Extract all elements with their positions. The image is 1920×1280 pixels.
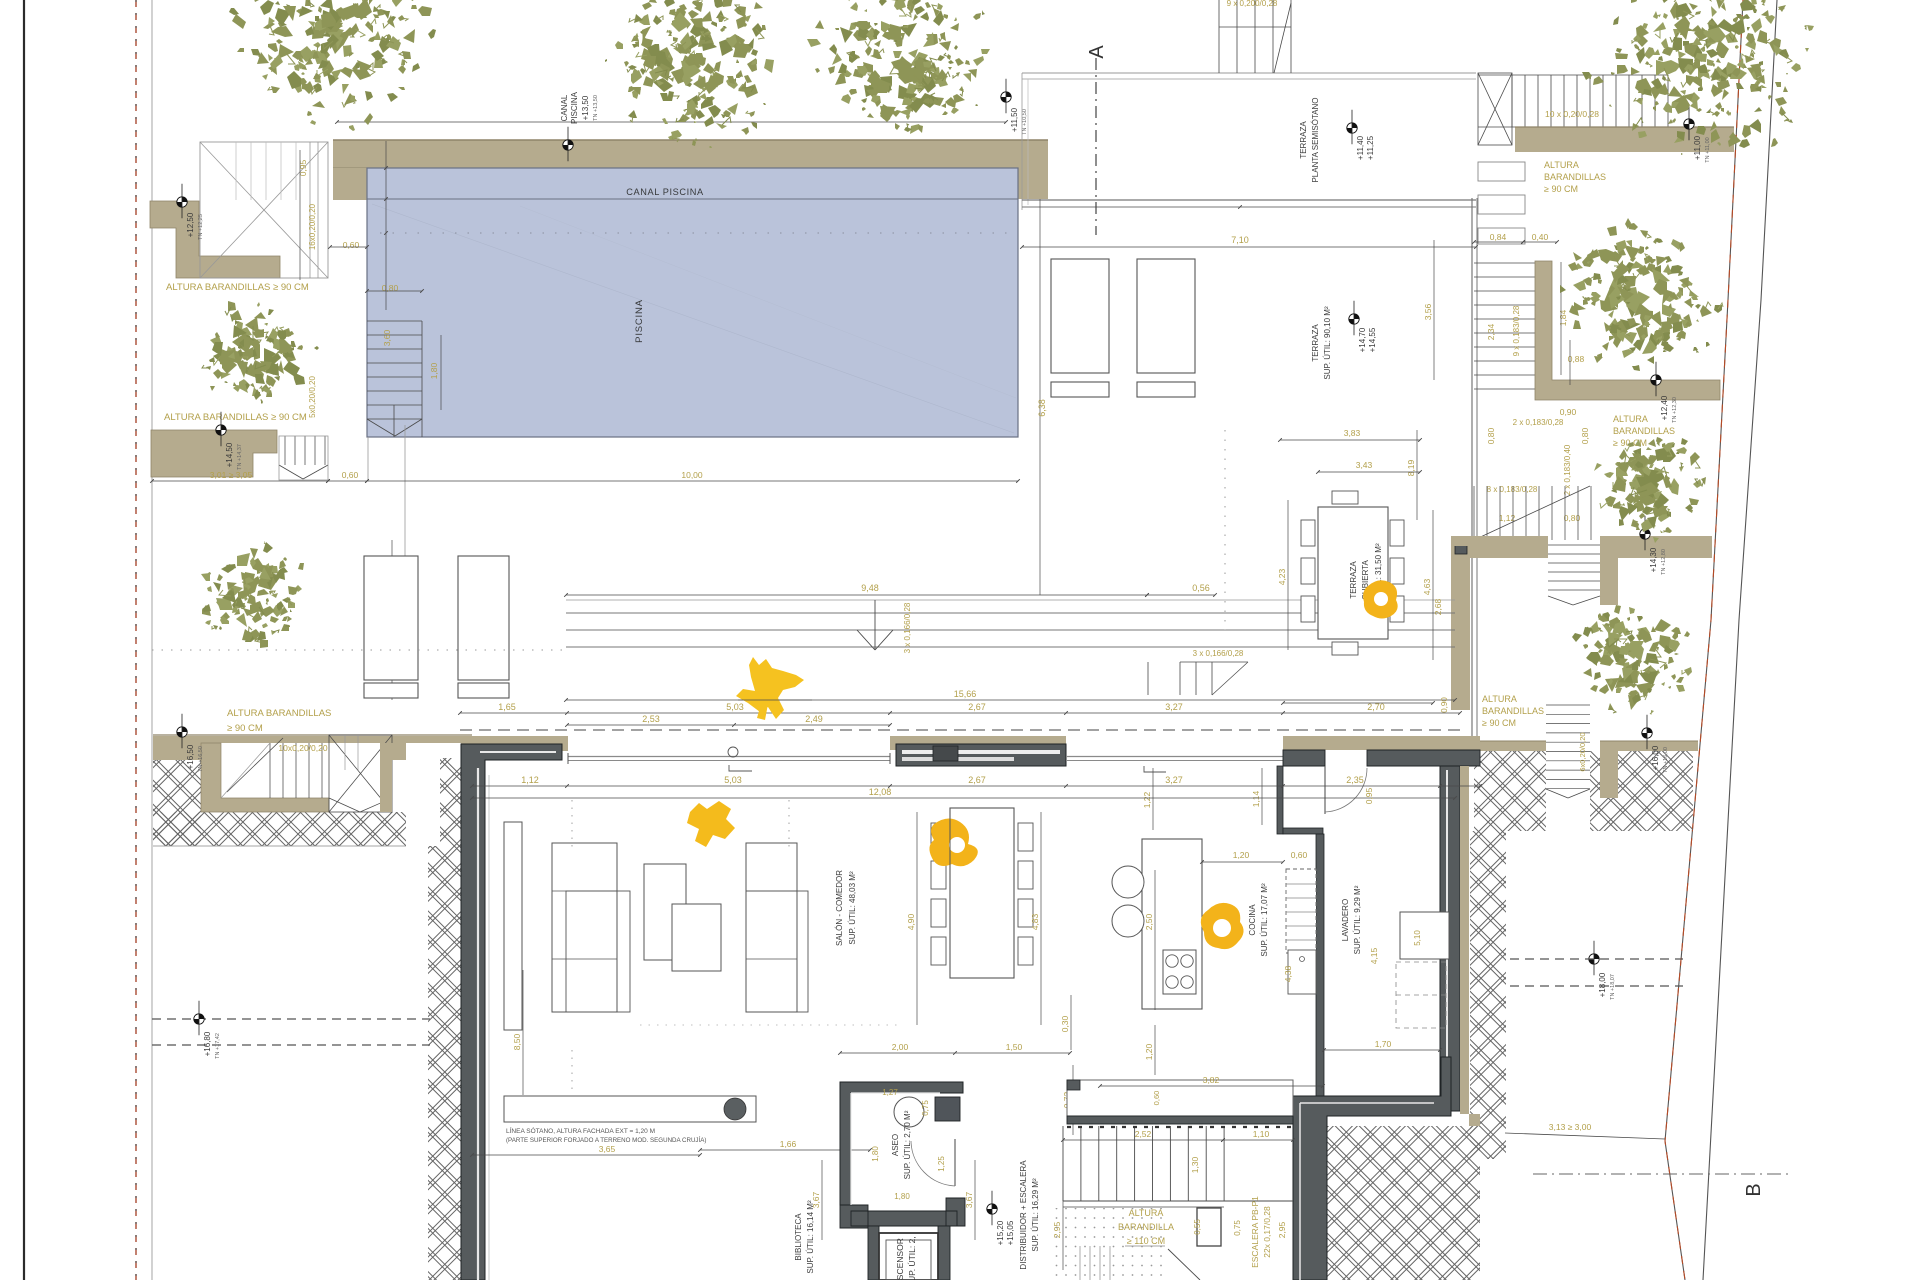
- svg-text:0,75: 0,75: [921, 1100, 930, 1116]
- svg-text:2,70: 2,70: [1367, 702, 1385, 712]
- svg-text:10x0,20/0,20: 10x0,20/0,20: [278, 743, 327, 753]
- svg-text:PLANTA SEMISÓTANO: PLANTA SEMISÓTANO: [1311, 97, 1320, 182]
- svg-text:0,55: 0,55: [1193, 1219, 1202, 1235]
- svg-text:0,90: 0,90: [1560, 407, 1577, 417]
- svg-text:B: B: [1743, 1183, 1765, 1196]
- svg-text:0,60: 0,60: [1152, 1091, 1161, 1106]
- svg-text:COCINA: COCINA: [1248, 904, 1257, 936]
- svg-text:ALTURA BARANDILLAS ≥ 90 CM: ALTURA BARANDILLAS ≥ 90 CM: [166, 282, 309, 293]
- svg-text:3,60: 3,60: [382, 329, 392, 346]
- svg-text:4,63: 4,63: [1422, 578, 1432, 595]
- svg-text:0,80: 0,80: [1580, 427, 1590, 444]
- svg-text:3,13 ≥ 3,00: 3,13 ≥ 3,00: [1549, 1122, 1592, 1132]
- svg-text:ALTURA BARANDILLAS ≥ 90 CM: ALTURA BARANDILLAS ≥ 90 CM: [164, 412, 307, 423]
- svg-text:12,08: 12,08: [869, 787, 892, 797]
- svg-text:≥ 90 CM: ≥ 90 CM: [227, 723, 263, 734]
- svg-text:2,35: 2,35: [1346, 775, 1364, 785]
- svg-text:1,66: 1,66: [780, 1139, 797, 1149]
- svg-text:+16,50: +16,50: [186, 744, 195, 769]
- svg-text:4,83: 4,83: [1030, 913, 1040, 930]
- svg-text:4,90: 4,90: [906, 913, 916, 930]
- svg-text:0,40: 0,40: [1532, 232, 1549, 242]
- svg-text:8,50: 8,50: [512, 1033, 522, 1050]
- svg-text:SUP. ÚTIL: 2,: SUP. ÚTIL: 2,: [907, 1236, 917, 1280]
- svg-text:4,38: 4,38: [1283, 965, 1293, 982]
- svg-text:0,56: 0,56: [1192, 583, 1210, 593]
- svg-text:1,22: 1,22: [1142, 791, 1152, 808]
- svg-text:0,80: 0,80: [1486, 427, 1496, 444]
- svg-text:+15,05: +15,05: [1006, 1220, 1015, 1245]
- svg-text:+16,00: +16,00: [1651, 745, 1660, 770]
- svg-text:1,25: 1,25: [937, 1156, 946, 1172]
- svg-text:3,83: 3,83: [1344, 428, 1361, 438]
- svg-text:≥ 90 CM: ≥ 90 CM: [1544, 184, 1578, 194]
- svg-text:0,60: 0,60: [343, 240, 360, 250]
- svg-text:0,90: 0,90: [1440, 697, 1449, 713]
- svg-text:5,10: 5,10: [1413, 930, 1422, 946]
- svg-text:+14,50: +14,50: [225, 442, 234, 467]
- svg-text:+14,30: +14,30: [1649, 547, 1658, 572]
- svg-text:9,48: 9,48: [861, 583, 879, 593]
- svg-text:TN +10,50: TN +10,50: [1022, 109, 1028, 135]
- svg-text:TN +16,50: TN +16,50: [198, 746, 204, 772]
- svg-text:ESCALERA PB-P1: ESCALERA PB-P1: [1250, 1196, 1260, 1268]
- svg-text:0,95: 0,95: [1364, 787, 1374, 804]
- svg-text:BARANDILLAS: BARANDILLAS: [1544, 172, 1606, 182]
- svg-text:+15,20: +15,20: [996, 1220, 1005, 1245]
- svg-text:22x 0,17/0,28: 22x 0,17/0,28: [1262, 1206, 1272, 1258]
- svg-text:15,66: 15,66: [954, 689, 977, 699]
- svg-text:3 x 0,166/0,28: 3 x 0,166/0,28: [903, 602, 912, 653]
- svg-text:1,65: 1,65: [498, 702, 516, 712]
- svg-text:+14,55: +14,55: [1368, 327, 1377, 352]
- svg-text:SUP. ÚTIL: 9,29 M²: SUP. ÚTIL: 9,29 M²: [1353, 885, 1362, 954]
- svg-text:CANAL: CANAL: [560, 94, 569, 121]
- svg-text:TN +17,42: TN +17,42: [215, 1033, 221, 1059]
- svg-text:6x0,20/0,20: 6x0,20/0,20: [1578, 732, 1587, 771]
- svg-text:1,12: 1,12: [521, 775, 539, 785]
- svg-text:2 x 0,183/0,40: 2 x 0,183/0,40: [1563, 444, 1572, 495]
- svg-text:PISCINA: PISCINA: [634, 299, 645, 343]
- svg-text:BARANDILLAS: BARANDILLAS: [1613, 426, 1675, 436]
- svg-text:3,67: 3,67: [964, 1191, 974, 1208]
- svg-text:+12,50: +12,50: [186, 212, 195, 237]
- svg-text:ALTURA: ALTURA: [1482, 694, 1517, 704]
- svg-text:TN +12,30: TN +12,30: [1672, 397, 1678, 423]
- svg-text:3,65: 3,65: [599, 1144, 616, 1154]
- svg-text:SUP. ÚTIL: 17,07 M²: SUP. ÚTIL: 17,07 M²: [1260, 883, 1269, 957]
- svg-text:2,52: 2,52: [1135, 1129, 1152, 1139]
- svg-text:3,27: 3,27: [1165, 775, 1183, 785]
- svg-text:+18,00: +18,00: [1598, 972, 1607, 997]
- svg-text:2,34: 2,34: [1486, 323, 1496, 340]
- svg-text:3,56: 3,56: [1423, 303, 1433, 320]
- svg-text:1,30: 1,30: [1190, 1156, 1200, 1173]
- svg-text:LÍNEA SÓTANO, ALTURA FACHADA E: LÍNEA SÓTANO, ALTURA FACHADA EXT = 1,20 …: [506, 1126, 655, 1135]
- svg-text:3 x 0,166/0,28: 3 x 0,166/0,28: [1193, 649, 1244, 658]
- svg-text:1,50: 1,50: [1006, 1042, 1023, 1052]
- svg-text:SUP. ÚTIL: 16,14 M²: SUP. ÚTIL: 16,14 M²: [806, 1200, 815, 1274]
- svg-text:CANAL PISCINA: CANAL PISCINA: [626, 187, 704, 197]
- svg-text:5,03: 5,03: [726, 702, 744, 712]
- svg-text:A: A: [1086, 45, 1108, 59]
- svg-text:+16,80: +16,80: [203, 1031, 212, 1056]
- svg-text:4,23: 4,23: [1277, 568, 1287, 585]
- svg-text:SUP. ÚTIL: 48,03 M²: SUP. ÚTIL: 48,03 M²: [848, 871, 857, 945]
- svg-text:3,27: 3,27: [1165, 702, 1183, 712]
- svg-text:5x0,20/0,20: 5x0,20/0,20: [308, 376, 317, 418]
- svg-text:SUP. ÚTIL: 16,29 M²: SUP. ÚTIL: 16,29 M²: [1031, 1178, 1040, 1252]
- svg-text:9 x 0,200/0,28: 9 x 0,200/0,28: [1227, 0, 1278, 8]
- svg-text:≥ 90 CM: ≥ 90 CM: [1482, 718, 1516, 728]
- svg-text:0,95: 0,95: [298, 159, 308, 176]
- svg-text:3,43: 3,43: [1356, 460, 1373, 470]
- svg-text:6,38: 6,38: [1037, 399, 1047, 417]
- svg-text:2,53: 2,53: [642, 714, 660, 724]
- svg-text:+11,00: +11,00: [1693, 135, 1702, 160]
- svg-text:+12,40: +12,40: [1660, 395, 1669, 420]
- svg-text:+11,50: +11,50: [1010, 107, 1019, 132]
- svg-text:TERRAZA: TERRAZA: [1299, 121, 1308, 159]
- svg-text:0,60: 0,60: [342, 470, 359, 480]
- svg-text:8,19: 8,19: [1406, 459, 1416, 476]
- svg-text:1,80: 1,80: [894, 1192, 910, 1201]
- svg-text:SUP. ÚTIL: 2,70 M²: SUP. ÚTIL: 2,70 M²: [903, 1110, 912, 1179]
- svg-text:TN +18,07: TN +18,07: [1610, 974, 1616, 1000]
- svg-text:PISCINA: PISCINA: [570, 91, 579, 124]
- svg-text:ALTURA: ALTURA: [1613, 414, 1648, 424]
- svg-text:TN +12,25: TN +12,25: [198, 214, 204, 240]
- svg-text:1,27: 1,27: [882, 1088, 898, 1097]
- svg-text:TERRAZA: TERRAZA: [1349, 561, 1358, 599]
- svg-text:0,80: 0,80: [382, 283, 399, 293]
- svg-text:16x0,20/0,20: 16x0,20/0,20: [308, 203, 317, 250]
- svg-text:SUP. ÚTIL: 90,10 M²: SUP. ÚTIL: 90,10 M²: [1323, 306, 1332, 380]
- svg-text:3,82: 3,82: [1203, 1075, 1220, 1085]
- svg-text:10,00: 10,00: [681, 470, 703, 480]
- svg-text:1,84: 1,84: [1558, 309, 1568, 326]
- svg-text:10 x 0,20/0,28: 10 x 0,20/0,28: [1545, 109, 1599, 119]
- svg-text:4,15: 4,15: [1369, 947, 1379, 964]
- svg-text:1,80: 1,80: [429, 362, 439, 379]
- svg-text:2,67: 2,67: [968, 775, 986, 785]
- svg-text:TN +12,80: TN +12,80: [1661, 549, 1667, 575]
- svg-text:LAVADERO: LAVADERO: [1341, 899, 1350, 941]
- svg-text:ALTURA: ALTURA: [1544, 160, 1579, 170]
- svg-text:SALÓN - COMEDOR: SALÓN - COMEDOR: [835, 870, 844, 946]
- svg-text:0,60: 0,60: [1291, 850, 1308, 860]
- svg-text:2 x 0,183/0,28: 2 x 0,183/0,28: [1513, 418, 1564, 427]
- svg-text:1,20: 1,20: [1144, 1043, 1154, 1060]
- svg-text:2,68: 2,68: [1433, 598, 1443, 615]
- svg-text:TN +13,50: TN +13,50: [593, 95, 599, 121]
- svg-text:9 x 0,183/0,28: 9 x 0,183/0,28: [1512, 305, 1521, 356]
- svg-text:0,75: 0,75: [1233, 1220, 1242, 1236]
- svg-text:+13,50: +13,50: [581, 95, 590, 120]
- svg-text:+11,40: +11,40: [1356, 135, 1365, 160]
- svg-text:1,70: 1,70: [1375, 1039, 1392, 1049]
- svg-text:1,14: 1,14: [1251, 790, 1261, 807]
- svg-text:2,67: 2,67: [968, 702, 986, 712]
- svg-text:2,50: 2,50: [1144, 913, 1154, 930]
- svg-text:8 x 0,183/0,28: 8 x 0,183/0,28: [1487, 485, 1538, 494]
- svg-text:(PARTE SUPERIOR FORJADO A TERR: (PARTE SUPERIOR FORJADO A TERRENO MOD. S…: [506, 1137, 706, 1144]
- svg-text:DISTRIBUIDOR + ESCALERA: DISTRIBUIDOR + ESCALERA: [1019, 1160, 1028, 1270]
- svg-text:7,10: 7,10: [1231, 235, 1249, 245]
- svg-text:1,80: 1,80: [871, 1146, 880, 1162]
- svg-text:0,84: 0,84: [1490, 232, 1507, 242]
- svg-text:+11,25: +11,25: [1366, 135, 1375, 160]
- svg-text:0,30: 0,30: [1060, 1015, 1070, 1032]
- svg-text:1,10: 1,10: [1253, 1129, 1270, 1139]
- svg-text:2,00: 2,00: [892, 1042, 909, 1052]
- svg-text:ASCENSOR: ASCENSOR: [895, 1238, 905, 1280]
- svg-text:TN +14,37: TN +14,37: [237, 444, 243, 470]
- svg-text:BIBLIOTECA: BIBLIOTECA: [794, 1213, 803, 1261]
- svg-text:BARANDILLAS: BARANDILLAS: [1482, 706, 1544, 716]
- svg-text:ASEO: ASEO: [891, 1134, 900, 1156]
- svg-text:ALTURA BARANDILLAS: ALTURA BARANDILLAS: [227, 708, 331, 719]
- svg-text:TN +16,00: TN +16,00: [1663, 747, 1669, 773]
- svg-text:5,03: 5,03: [724, 775, 742, 785]
- svg-text:1,20: 1,20: [1233, 850, 1250, 860]
- svg-text:2,49: 2,49: [805, 714, 823, 724]
- svg-text:2,95: 2,95: [1277, 1221, 1287, 1238]
- svg-text:3,01 ≥ 3,05: 3,01 ≥ 3,05: [210, 470, 253, 480]
- svg-text:TN +11,00: TN +11,00: [1705, 137, 1711, 162]
- svg-text:TERRAZA: TERRAZA: [1311, 324, 1320, 362]
- svg-text:+14,70: +14,70: [1358, 327, 1367, 352]
